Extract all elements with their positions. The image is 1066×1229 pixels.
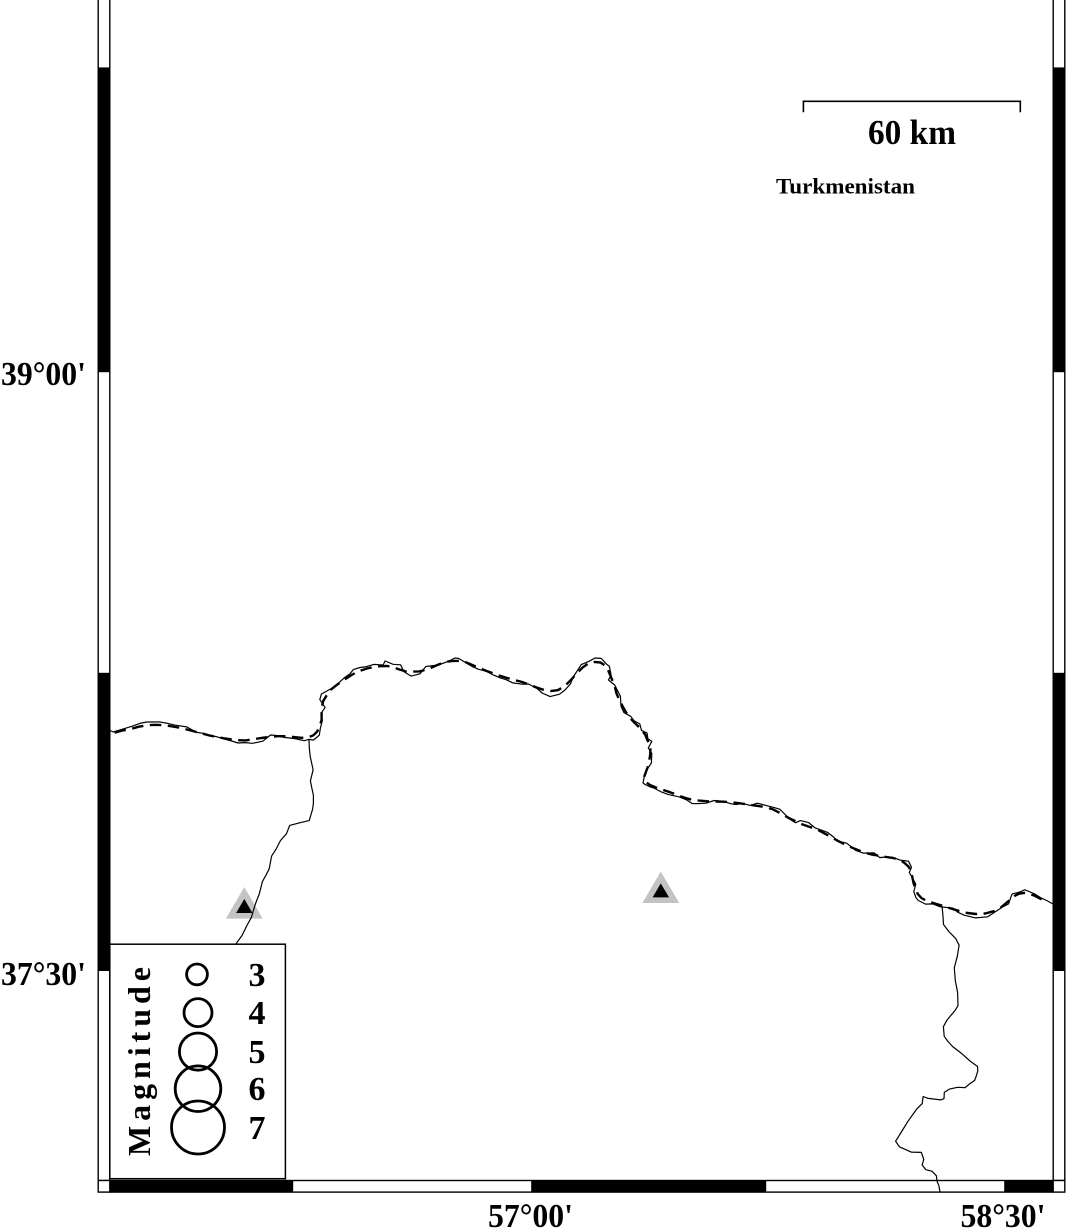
svg-text:3: 3 bbox=[249, 957, 266, 994]
svg-text:57°00': 57°00' bbox=[488, 1198, 573, 1229]
svg-text:60 km: 60 km bbox=[868, 113, 956, 152]
svg-text:6: 6 bbox=[249, 1071, 266, 1108]
svg-text:Magnitude: Magnitude bbox=[121, 967, 157, 1156]
svg-text:Turkmenistan: Turkmenistan bbox=[776, 174, 915, 199]
svg-text:7: 7 bbox=[249, 1110, 266, 1147]
svg-text:58°30': 58°30' bbox=[961, 1198, 1046, 1229]
svg-text:39°00': 39°00' bbox=[1, 356, 86, 393]
svg-text:4: 4 bbox=[249, 995, 266, 1032]
svg-text:37°30': 37°30' bbox=[1, 956, 86, 993]
svg-text:5: 5 bbox=[249, 1034, 266, 1071]
